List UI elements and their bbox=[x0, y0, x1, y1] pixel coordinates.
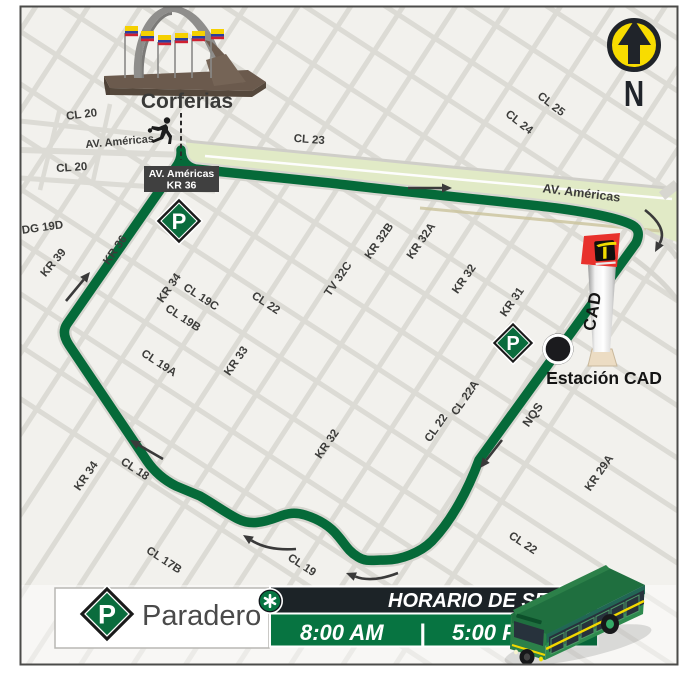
svg-text:Estación CAD: Estación CAD bbox=[546, 368, 662, 388]
svg-text:Paradero: Paradero bbox=[142, 600, 261, 632]
svg-text:P: P bbox=[98, 600, 116, 630]
svg-text:N: N bbox=[624, 74, 644, 114]
svg-text:CL 23: CL 23 bbox=[293, 133, 325, 147]
svg-text:KR 36: KR 36 bbox=[167, 180, 197, 192]
svg-text:8:00 AM: 8:00 AM bbox=[300, 620, 384, 645]
svg-text:CL 20: CL 20 bbox=[56, 161, 88, 175]
svg-text:Corferias: Corferias bbox=[141, 90, 233, 113]
svg-text:|: | bbox=[419, 620, 426, 647]
svg-text:P: P bbox=[172, 209, 187, 234]
svg-text:P: P bbox=[506, 333, 519, 355]
svg-text:AV. Américas: AV. Américas bbox=[149, 168, 215, 180]
